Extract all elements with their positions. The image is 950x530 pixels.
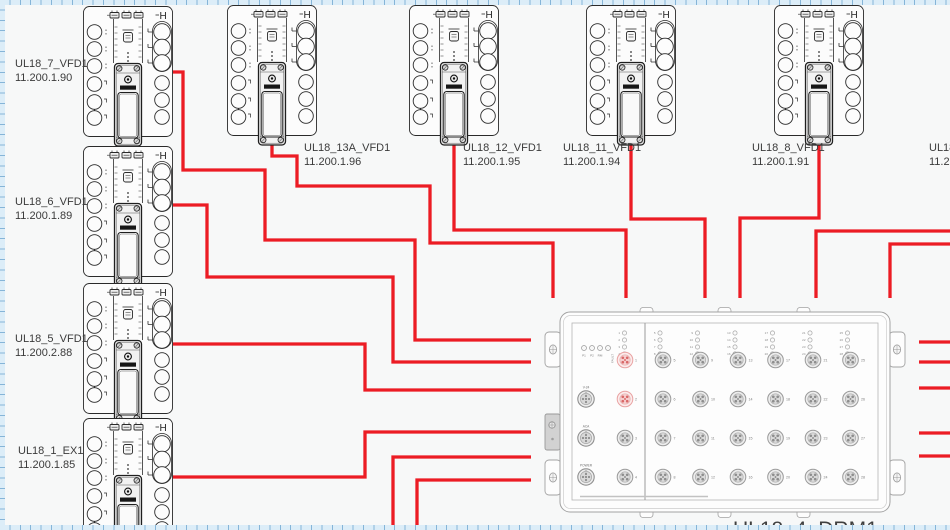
- wiring-diagram: H: [0, 0, 950, 530]
- cable-ul18_11_vfd1[interactable]: [631, 141, 705, 298]
- svg-text:11: 11: [711, 436, 715, 440]
- svg-text:1: 1: [635, 358, 637, 362]
- drm-port-11[interactable]: [693, 430, 709, 446]
- svg-text:16: 16: [727, 352, 731, 356]
- svg-text:11: 11: [690, 345, 693, 349]
- svg-text:28: 28: [861, 475, 865, 479]
- label-ul18_12_vfd1[interactable]: UL18_12_VFD111.200.1.95: [463, 141, 542, 169]
- svg-text:15: 15: [727, 345, 731, 349]
- drm-port-21[interactable]: [805, 352, 821, 368]
- svg-text:13: 13: [727, 331, 731, 335]
- svg-text:2: 2: [635, 397, 637, 401]
- svg-text:24: 24: [802, 352, 806, 356]
- svg-text:7: 7: [674, 436, 676, 440]
- drm-port-13[interactable]: [730, 352, 746, 368]
- svg-text:27: 27: [840, 345, 844, 349]
- svg-text:18: 18: [786, 397, 790, 401]
- svg-text:12: 12: [711, 475, 715, 479]
- device-ul18_12_vfd1[interactable]: [410, 6, 499, 146]
- drm-port-8[interactable]: [655, 469, 671, 485]
- svg-text:V-24: V-24: [583, 386, 590, 390]
- drm-led-P2: [590, 346, 595, 351]
- drm-port-19[interactable]: [768, 430, 784, 446]
- label-ul18_7_vfd1[interactable]: UL18_7_VFD111.200.1.90: [15, 57, 88, 85]
- label-ul18_1_ex1[interactable]: UL18_1_EX111.200.1.85: [18, 444, 83, 472]
- svg-text:18: 18: [765, 338, 769, 342]
- svg-text:25: 25: [840, 331, 844, 335]
- drm-led-P1: [582, 346, 587, 351]
- drm-port-10[interactable]: [693, 391, 709, 407]
- label-ul18_8_vfd1[interactable]: UL18_8_VFD111.200.1.91: [752, 141, 825, 169]
- drm-port-7[interactable]: [655, 430, 671, 446]
- drm-port-12[interactable]: [693, 469, 709, 485]
- drm-port-26[interactable]: [843, 391, 859, 407]
- svg-text:19: 19: [786, 436, 790, 440]
- cable-ul18_1_ex1[interactable]: [173, 432, 531, 477]
- cable-from_right_1[interactable]: [816, 231, 950, 298]
- svg-text:15: 15: [749, 436, 753, 440]
- svg-text:14: 14: [749, 397, 753, 401]
- label-offscreen-right[interactable]: UL1811.20: [929, 141, 950, 169]
- drm-aux-port-ACA[interactable]: [578, 430, 594, 446]
- drm-port-24[interactable]: [805, 469, 821, 485]
- cable-from_right_2[interactable]: [890, 244, 950, 298]
- drm-port-3[interactable]: [617, 430, 633, 446]
- cable-from_below_2[interactable]: [417, 480, 531, 530]
- ruler-top: [0, 0, 950, 5]
- svg-text:13: 13: [749, 358, 753, 362]
- device-ul18_11_vfd1[interactable]: [587, 6, 676, 146]
- svg-text:12: 12: [690, 352, 694, 356]
- device-ul18_4_drm1[interactable]: P1P2RMFAULT12345678910111213141516171819…: [545, 308, 905, 518]
- drm-aux-port-V-24[interactable]: [578, 391, 594, 407]
- drm-led-FAULT: [606, 346, 611, 351]
- svg-text:26: 26: [840, 338, 844, 342]
- drm-port-28[interactable]: [843, 469, 859, 485]
- svg-text:9: 9: [711, 358, 713, 362]
- drm-port-18[interactable]: [768, 391, 784, 407]
- drm-port-9[interactable]: [693, 352, 709, 368]
- svg-text:19: 19: [765, 345, 769, 349]
- svg-text:25: 25: [861, 358, 865, 362]
- device-ul18_13a_vfd1[interactable]: [228, 6, 317, 146]
- device-ul18_5_vfd1[interactable]: [84, 284, 173, 424]
- svg-text:10: 10: [711, 397, 715, 401]
- svg-text:23: 23: [802, 345, 806, 349]
- svg-text:8: 8: [674, 475, 676, 479]
- drm-port-17[interactable]: [768, 352, 784, 368]
- drm-port-16[interactable]: [730, 469, 746, 485]
- device-ul18_7_vfd1[interactable]: [84, 7, 173, 147]
- drm-port-5[interactable]: [655, 352, 671, 368]
- svg-text:23: 23: [824, 436, 828, 440]
- label-ul18_6_vfd1[interactable]: UL18_6_VFD111.200.1.89: [15, 195, 88, 223]
- drm-aux-port-POWER[interactable]: [578, 469, 594, 485]
- svg-text:14: 14: [727, 338, 731, 342]
- svg-text:27: 27: [861, 436, 865, 440]
- svg-text:17: 17: [765, 331, 769, 335]
- drm-led-RM: [598, 346, 603, 351]
- drm-port-27[interactable]: [843, 430, 859, 446]
- drm-port-22[interactable]: [805, 391, 821, 407]
- svg-text:10: 10: [690, 338, 694, 342]
- svg-text:P1: P1: [582, 354, 586, 358]
- svg-text:P2: P2: [590, 354, 594, 358]
- svg-text:21: 21: [802, 331, 806, 335]
- label-ul18_5_vfd1[interactable]: UL18_5_VFD111.200.2.88: [15, 332, 88, 360]
- drm-port-23[interactable]: [805, 430, 821, 446]
- drm-port-15[interactable]: [730, 430, 746, 446]
- label-ul18_11_vfd1[interactable]: UL18_11_VFD111.200.1.94: [563, 141, 641, 169]
- cable-from_below_1[interactable]: [393, 457, 531, 530]
- label-ul18_13a_vfd1[interactable]: UL18_13A_VFD111.200.1.96: [304, 141, 390, 169]
- drm-port-2[interactable]: [617, 391, 633, 407]
- svg-text:20: 20: [786, 475, 790, 479]
- drm-port-25[interactable]: [843, 352, 859, 368]
- svg-text:16: 16: [749, 475, 753, 479]
- drm-port-20[interactable]: [768, 469, 784, 485]
- drm-port-14[interactable]: [730, 391, 746, 407]
- svg-text:RM: RM: [598, 354, 603, 358]
- svg-text:3: 3: [635, 436, 637, 440]
- schematic-canvas: H: [0, 0, 950, 530]
- svg-text:22: 22: [824, 397, 828, 401]
- svg-text:6: 6: [674, 397, 676, 401]
- svg-text:22: 22: [802, 338, 806, 342]
- svg-text:24: 24: [824, 475, 828, 479]
- drm-port-1[interactable]: [617, 352, 633, 368]
- svg-text:20: 20: [765, 352, 769, 356]
- device-ul18_8_vfd1[interactable]: [775, 6, 864, 146]
- svg-text:POWER: POWER: [580, 464, 593, 468]
- svg-text:28: 28: [840, 352, 844, 356]
- drm-port-4[interactable]: [617, 469, 633, 485]
- svg-text:21: 21: [824, 358, 828, 362]
- svg-text:4: 4: [635, 475, 637, 479]
- device-ul18_6_vfd1[interactable]: [84, 147, 173, 287]
- svg-text:FAULT: FAULT: [611, 354, 615, 363]
- device-ul18_1_ex1[interactable]: [84, 419, 173, 530]
- drm-port-6[interactable]: [655, 391, 671, 407]
- ruler-bottom: [0, 525, 950, 530]
- cable-ul18_5_vfd1[interactable]: [173, 344, 531, 390]
- ruler-left: [0, 0, 5, 530]
- svg-text:ACA: ACA: [583, 425, 590, 429]
- svg-text:5: 5: [674, 358, 676, 362]
- svg-text:26: 26: [861, 397, 865, 401]
- svg-text:17: 17: [786, 358, 790, 362]
